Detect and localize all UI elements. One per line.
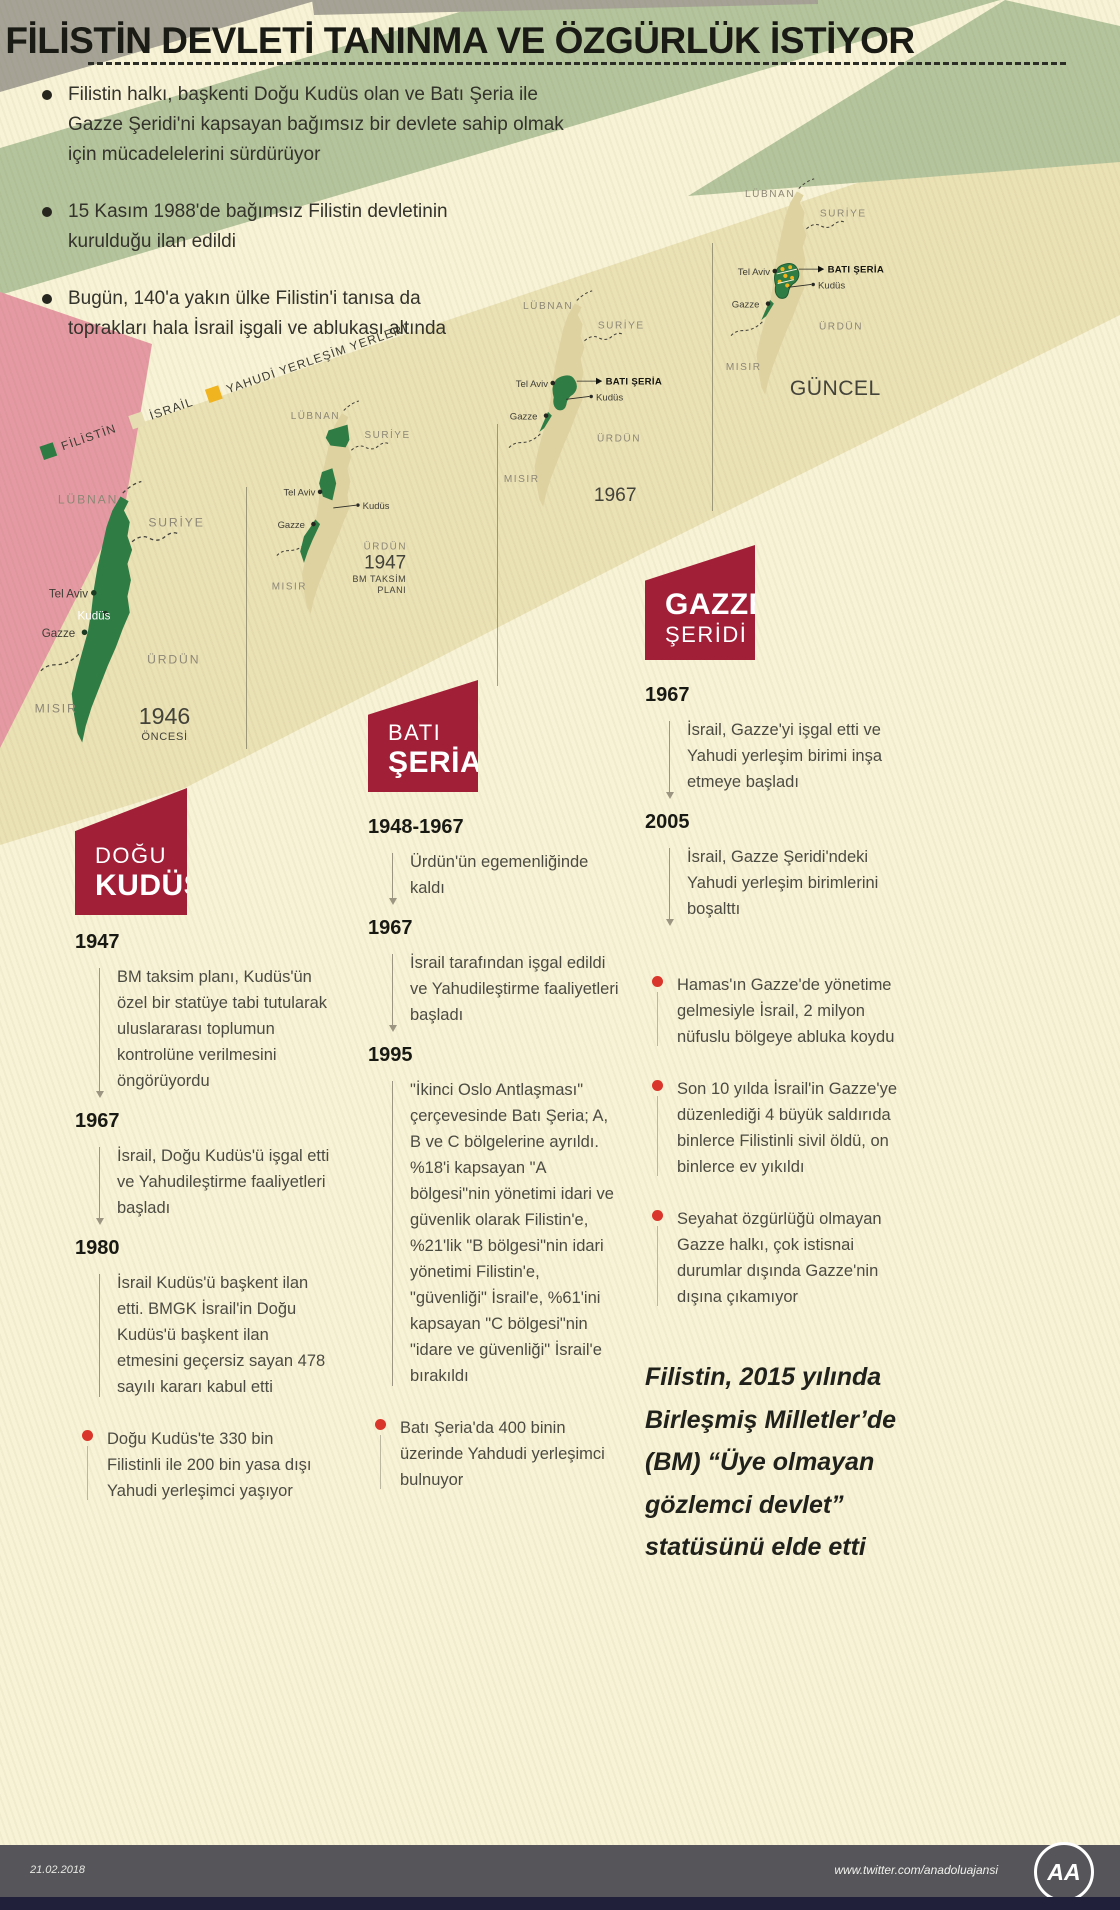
anadolu-agency-logo: AA xyxy=(1034,1842,1094,1902)
label-tel-aviv: Tel Aviv xyxy=(738,267,771,278)
header-block-gazze-seridi: GAZZE ŞERİDİ xyxy=(645,545,755,660)
fact-text: Son 10 yılda İsrail'in Gazze'ye düzenled… xyxy=(677,1076,913,1180)
map-caption-sub: BM TAKSİM xyxy=(353,574,407,584)
fact-bullet: Seyahat özgürlüğü olmayan Gazze halkı, ç… xyxy=(645,1206,913,1310)
fact-text: Seyahat özgürlüğü olmayan Gazze halkı, ç… xyxy=(677,1206,913,1310)
timeline-text: Ürdün'ün egemenliğinde kaldı xyxy=(410,849,620,901)
bullet-marker xyxy=(651,976,663,1046)
bullet-line xyxy=(380,1435,381,1489)
fact-bullet: Son 10 yılda İsrail'in Gazze'ye düzenled… xyxy=(645,1076,913,1180)
timeline-entry: İsrail, Gazze'yi işgal etti ve Yahudi ye… xyxy=(645,717,913,795)
border-egypt-dashed xyxy=(730,322,763,337)
timeline-entry: BM taksim planı, Kudüs'ün özel bir statü… xyxy=(75,964,330,1094)
fact-text: Batı Şeria'da 400 binin üzerinde Yahdudi… xyxy=(400,1415,620,1493)
timeline-year: 2005 xyxy=(645,811,913,834)
label-suriye: SURİYE xyxy=(365,430,411,441)
header-line: DOĞU xyxy=(95,843,187,869)
header-line: ŞERİDİ xyxy=(665,622,755,648)
label-gazze: Gazze xyxy=(278,520,305,531)
timeline-year: 1947 xyxy=(75,931,330,954)
border-egypt-dashed xyxy=(508,434,541,449)
bati-seria-arrow-icon xyxy=(818,266,824,273)
timeline-entry: Ürdün'ün egemenliğinde kaldı xyxy=(368,849,620,901)
label-kudus: Kudüs xyxy=(78,610,111,623)
header-block-dogu-kudus: DOĞU KUDÜS xyxy=(75,788,187,915)
timeline-entry: İsrail Kudüs'ü başkent ilan etti. BMGK İ… xyxy=(75,1270,330,1400)
label-tel-aviv: Tel Aviv xyxy=(516,379,549,390)
intro-bullet: 15 Kasım 1988'de bağımsız Filistin devle… xyxy=(42,197,612,257)
timeline-arrow-line xyxy=(99,1147,100,1218)
un-status-note: Filistin, 2015 yılında Birleşmiş Milletl… xyxy=(645,1356,913,1569)
border-east-dashed xyxy=(584,333,623,340)
gazze-dot xyxy=(544,413,549,418)
timeline-year: 1995 xyxy=(368,1044,620,1067)
fact-bullet: Doğu Kudüs'te 330 bin Filistinli ile 200… xyxy=(75,1426,330,1504)
label-gazze: Gazze xyxy=(510,412,538,423)
timeline-text: İsrail tarafından işgal edildi ve Yahudi… xyxy=(410,950,620,1028)
footer-date: 21.02.2018 xyxy=(30,1864,85,1876)
label-misir: MISIR xyxy=(272,581,307,592)
timeline-year: 1967 xyxy=(75,1110,330,1133)
bullet-dot-icon xyxy=(42,294,52,304)
map-caption-sub: ÖNCESİ xyxy=(141,730,187,743)
red-dot-icon xyxy=(652,1080,663,1091)
timeline-text: İsrail Kudüs'ü başkent ilan etti. BMGK İ… xyxy=(117,1270,330,1400)
timeline-arrow-line xyxy=(99,968,100,1091)
label-urdun: ÜRDÜN xyxy=(147,653,200,667)
border-north-dashed xyxy=(123,481,142,493)
map-caption: GÜNCEL xyxy=(790,377,881,400)
aa-logo-text: AA xyxy=(1047,1859,1080,1886)
timeline-entry: "İkinci Oslo Antlaşması" çerçevesinde Ba… xyxy=(368,1077,620,1389)
label-urdun: ÜRDÜN xyxy=(364,542,407,553)
label-gazze: Gazze xyxy=(42,627,76,640)
kudus-pointer-dot xyxy=(356,503,359,506)
timeline-arrow-line xyxy=(392,954,393,1025)
gazze-dot xyxy=(766,301,771,306)
dashed-divider xyxy=(88,62,1066,65)
bullet-marker xyxy=(651,1080,663,1176)
map-1967: LÜBNAN SURİYE Tel Aviv BATI ŞERİA Kudüs … xyxy=(500,288,644,528)
bullet-dot-icon xyxy=(42,90,52,100)
intro-bullet-text: Bugün, 140'a yakın ülke Filistin'i tanıs… xyxy=(68,284,488,344)
timeline-line xyxy=(392,1081,393,1386)
label-lubnan: LÜBNAN xyxy=(523,300,573,312)
infographic-canvas: FİLİSTİN DEVLETİ TANINMA VE ÖZGÜRLÜK İST… xyxy=(0,0,1120,1910)
label-urdun: ÜRDÜN xyxy=(597,433,641,445)
intro-bullet-text: 15 Kasım 1988'de bağımsız Filistin devle… xyxy=(68,197,508,257)
label-bati-seria: BATI ŞERİA xyxy=(828,264,884,275)
map-1947: LÜBNAN SURİYE Tel Aviv Kudüs Gazze ÜRDÜN… xyxy=(268,398,410,635)
timeline-entry: İsrail, Doğu Kudüs'ü işgal etti ve Yahud… xyxy=(75,1143,330,1221)
gazze-dot xyxy=(82,629,88,635)
label-lubnan: LÜBNAN xyxy=(58,493,118,507)
timeline-line xyxy=(99,1274,100,1397)
border-east-dashed xyxy=(806,221,845,228)
settlement-patch xyxy=(790,276,794,280)
label-kudus: Kudüs xyxy=(363,501,390,512)
timeline-text: İsrail, Doğu Kudüs'ü işgal etti ve Yahud… xyxy=(117,1143,330,1221)
label-misir: MISIR xyxy=(504,474,540,485)
bullet-line xyxy=(657,1226,658,1306)
red-dot-icon xyxy=(375,1419,386,1430)
tel-aviv-dot xyxy=(772,269,777,274)
bullet-line xyxy=(657,992,658,1046)
border-egypt-dashed xyxy=(39,654,78,673)
header-line: BATI xyxy=(388,720,478,746)
red-dot-icon xyxy=(652,976,663,987)
column-bati-seria: BATI ŞERİA 1948-1967 Ürdün'ün egemenliği… xyxy=(368,680,620,1493)
timeline-arrow-line xyxy=(669,721,670,792)
map-1946: LÜBNAN SURİYE Tel Aviv Kudüs Gazze ÜRDÜN… xyxy=(30,478,204,768)
label-lubnan: LÜBNAN xyxy=(291,411,340,422)
kudus-pointer-dot xyxy=(811,283,814,286)
label-tel-aviv: Tel Aviv xyxy=(283,488,315,499)
red-dot-icon xyxy=(652,1210,663,1221)
timeline-year: 1980 xyxy=(75,1237,330,1260)
bullet-marker xyxy=(651,1210,663,1306)
column-gazze-seridi: GAZZE ŞERİDİ 1967 İsrail, Gazze'yi işgal… xyxy=(645,545,913,1569)
bullet-marker xyxy=(374,1419,386,1489)
header-line: GAZZE xyxy=(665,588,755,622)
fact-text: Hamas'ın Gazze'de yönetime gelmesiyle İs… xyxy=(677,972,913,1050)
label-suriye: SURİYE xyxy=(148,516,204,530)
bullet-marker xyxy=(81,1430,93,1500)
timeline-entry: İsrail tarafından işgal edildi ve Yahudi… xyxy=(368,950,620,1028)
timeline-year: 1948-1967 xyxy=(368,816,620,839)
timeline-text: BM taksim planı, Kudüs'ün özel bir statü… xyxy=(117,964,330,1094)
kudus-pointer-dot xyxy=(589,395,592,398)
tel-aviv-dot xyxy=(318,490,323,495)
label-urdun: ÜRDÜN xyxy=(819,321,863,333)
map-caption-year: 1946 xyxy=(139,703,191,729)
border-east-dashed xyxy=(351,443,390,450)
header-block-bati-seria: BATI ŞERİA xyxy=(368,680,478,792)
timeline-entry: İsrail, Gazze Şeridi'ndeki Yahudi yerleş… xyxy=(645,844,913,922)
timeline-arrow-line xyxy=(669,848,670,919)
label-misir: MISIR xyxy=(726,362,762,373)
timeline-arrow-line xyxy=(392,853,393,898)
map-caption-year: 1947 xyxy=(364,553,406,574)
map-divider-line xyxy=(712,243,713,511)
border-east-dashed xyxy=(132,533,180,542)
fact-bullet: Batı Şeria'da 400 binin üzerinde Yahdudi… xyxy=(368,1415,620,1493)
bullet-line xyxy=(657,1096,658,1176)
red-dot-icon xyxy=(82,1430,93,1441)
fact-text: Doğu Kudüs'te 330 bin Filistinli ile 200… xyxy=(107,1426,330,1504)
settlement-patch xyxy=(788,265,792,269)
tel-aviv-dot xyxy=(550,381,555,386)
column-dogu-kudus: DOĞU KUDÜS 1947 BM taksim planı, Kudüs'ü… xyxy=(75,788,330,1504)
footer-twitter-handle: www.twitter.com/anadoluajansi xyxy=(834,1863,998,1877)
map-divider-line xyxy=(246,487,247,749)
timeline-text: "İkinci Oslo Antlaşması" çerçevesinde Ba… xyxy=(410,1077,620,1389)
label-gazze: Gazze xyxy=(732,300,760,311)
timeline-year: 1967 xyxy=(368,917,620,940)
label-suriye: SURİYE xyxy=(598,318,645,331)
label-misir: MISIR xyxy=(35,701,78,715)
timeline-text: İsrail, Gazze Şeridi'ndeki Yahudi yerleş… xyxy=(687,844,913,922)
settlement-patch xyxy=(780,267,784,271)
bati-seria-arrow-icon xyxy=(596,378,602,385)
map-caption-sub: PLANI xyxy=(377,585,406,595)
map-divider-line xyxy=(497,424,498,686)
page-title: FİLİSTİN DEVLETİ TANINMA VE ÖZGÜRLÜK İST… xyxy=(0,20,920,62)
intro-bullet-text: Filistin halkı, başkenti Doğu Kudüs olan… xyxy=(68,80,573,170)
fact-bullet: Hamas'ın Gazze'de yönetime gelmesiyle İs… xyxy=(645,972,913,1050)
tel-aviv-dot xyxy=(91,590,97,596)
bullet-line xyxy=(87,1446,88,1500)
footer-accent-strip xyxy=(0,1897,1120,1910)
label-bati-seria: BATI ŞERİA xyxy=(606,376,662,387)
bullet-dot-icon xyxy=(42,207,52,217)
gazze-dot xyxy=(311,522,316,527)
label-suriye: SURİYE xyxy=(820,206,867,219)
label-tel-aviv: Tel Aviv xyxy=(49,587,88,600)
border-north-dashed xyxy=(344,401,359,410)
label-kudus: Kudüs xyxy=(818,280,845,291)
intro-bullet: Filistin halkı, başkenti Doğu Kudüs olan… xyxy=(42,80,612,170)
header-line: KUDÜS xyxy=(95,869,187,903)
header-line: ŞERİA xyxy=(388,746,478,780)
map-caption-year: 1967 xyxy=(594,485,637,506)
settlement-patch xyxy=(783,274,787,278)
timeline-text: İsrail, Gazze'yi işgal etti ve Yahudi ye… xyxy=(687,717,913,795)
border-north-dashed xyxy=(799,179,814,189)
label-lubnan: LÜBNAN xyxy=(745,188,795,200)
footer-bar: 21.02.2018 www.twitter.com/anadoluajansi… xyxy=(0,1845,1120,1897)
map-guncel: LÜBNAN SURİYE Tel Aviv BATI ŞERİA Kudüs … xyxy=(722,176,866,416)
timeline-year: 1967 xyxy=(645,684,913,707)
label-kudus: Kudüs xyxy=(596,392,623,403)
border-north-dashed xyxy=(577,291,592,301)
